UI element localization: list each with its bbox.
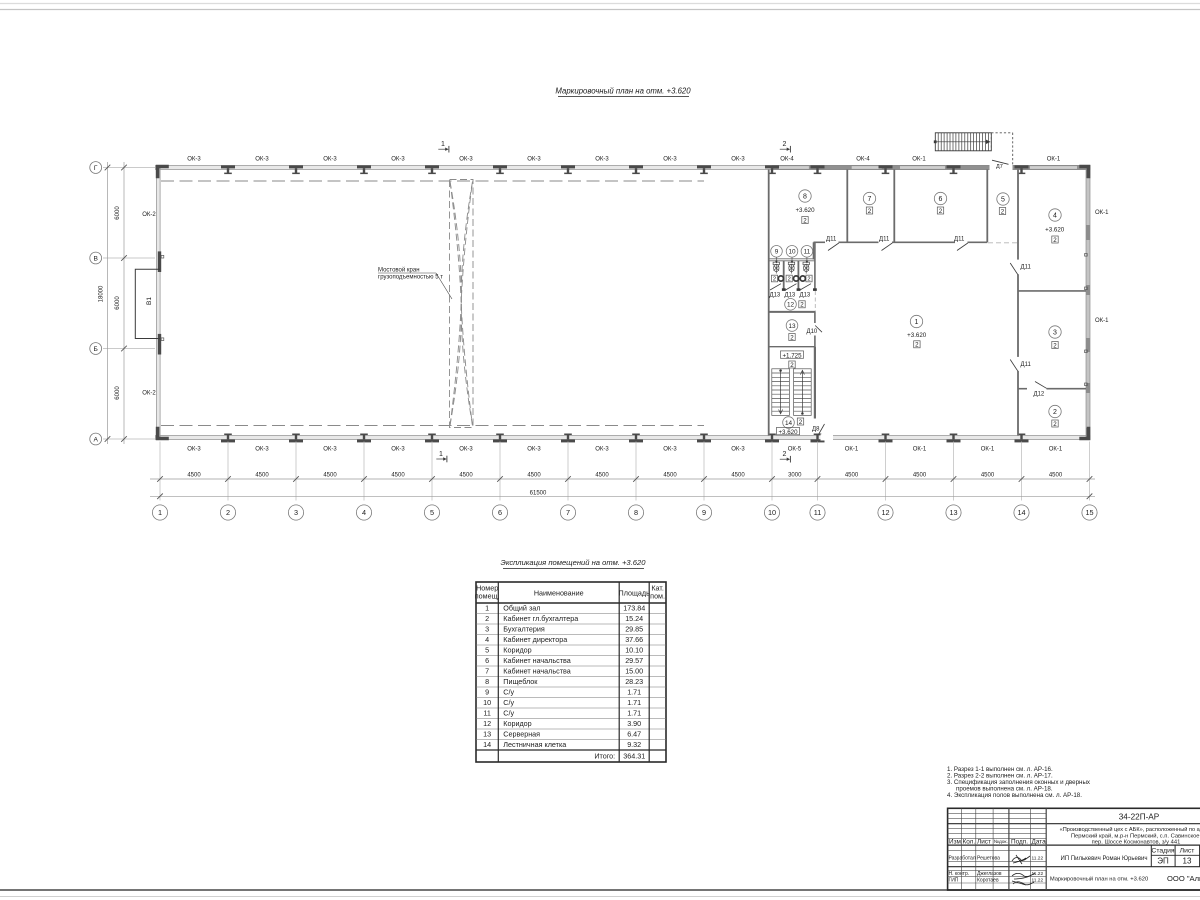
svg-text:С/у: С/у (503, 698, 514, 707)
svg-text:Лист: Лист (1180, 848, 1195, 855)
svg-text:ОК-1: ОК-1 (1049, 447, 1063, 453)
svg-text:Бухгалтерия: Бухгалтерия (503, 625, 545, 634)
svg-text:Кабинет начальства: Кабинет начальства (503, 656, 570, 665)
svg-text:28.23: 28.23 (625, 677, 643, 686)
svg-text:14: 14 (1017, 508, 1025, 517)
svg-text:4500: 4500 (731, 473, 745, 479)
svg-text:ОК-3: ОК-3 (255, 157, 269, 163)
svg-text:3000: 3000 (788, 473, 802, 479)
svg-text:3.90: 3.90 (627, 719, 641, 728)
svg-text:5: 5 (430, 508, 434, 517)
svg-text:2: 2 (803, 217, 807, 224)
svg-text:4: 4 (485, 635, 489, 644)
svg-text:Коротаев: Коротаев (977, 877, 999, 883)
svg-text:2: 2 (226, 508, 230, 517)
svg-text:ОК-3: ОК-3 (459, 447, 473, 453)
svg-text:1.71: 1.71 (627, 688, 641, 697)
svg-text:ОК-3: ОК-3 (731, 157, 745, 163)
svg-text:Д13: Д13 (770, 293, 781, 299)
svg-text:6.47: 6.47 (627, 730, 641, 739)
svg-text:пом.: пом. (650, 592, 665, 601)
svg-text:9: 9 (775, 249, 779, 256)
svg-text:6: 6 (485, 656, 489, 665)
svg-text:ОК-2: ОК-2 (142, 391, 156, 397)
svg-text:2: 2 (939, 208, 943, 215)
svg-text:Итого:: Итого: (594, 752, 615, 761)
svg-text:15.00: 15.00 (625, 667, 643, 676)
svg-text:Д13: Д13 (800, 293, 811, 299)
svg-text:4500: 4500 (323, 473, 337, 479)
svg-text:10.10: 10.10 (625, 646, 643, 655)
svg-text:2: 2 (1053, 421, 1057, 428)
svg-text:4: 4 (1053, 213, 1057, 220)
svg-text:13: 13 (949, 508, 957, 517)
svg-text:ОК-1: ОК-1 (845, 447, 859, 453)
svg-text:13: 13 (483, 730, 491, 739)
svg-text:14: 14 (785, 420, 793, 427)
svg-text:Наименование: Наименование (534, 589, 584, 598)
svg-text:+3.620: +3.620 (907, 332, 927, 339)
svg-text:ОК-3: ОК-3 (187, 447, 201, 453)
svg-text:4500: 4500 (527, 473, 541, 479)
svg-text:10: 10 (483, 698, 491, 707)
svg-text:8: 8 (485, 677, 489, 686)
svg-text:Д10: Д10 (807, 329, 818, 335)
svg-text:4500: 4500 (255, 473, 269, 479)
svg-text:4500: 4500 (595, 473, 609, 479)
svg-text:Кабинет директора: Кабинет директора (503, 635, 567, 644)
svg-text:Мостовой кран: Мостовой кран (378, 267, 420, 274)
svg-text:4500: 4500 (913, 473, 927, 479)
svg-text:61500: 61500 (530, 490, 547, 496)
svg-text:1: 1 (439, 451, 443, 458)
svg-text:Коридор: Коридор (503, 646, 531, 655)
svg-text:15: 15 (1085, 508, 1093, 517)
svg-text:2: 2 (800, 302, 804, 309)
svg-text:Экспликация помещений на отм.: Экспликация помещений на отм. +3.620 (501, 558, 647, 567)
svg-text:Джеглазов: Джеглазов (977, 871, 1002, 877)
svg-text:6000: 6000 (115, 386, 121, 400)
svg-text:12: 12 (787, 302, 795, 309)
svg-text:6000: 6000 (115, 206, 121, 220)
svg-text:1: 1 (158, 508, 162, 517)
svg-text:ОК-3: ОК-3 (255, 447, 269, 453)
svg-text:Лист: Лист (977, 838, 991, 845)
svg-text:2: 2 (773, 277, 776, 283)
svg-text:Стадия: Стадия (1151, 848, 1174, 855)
svg-text:2: 2 (783, 141, 787, 148)
svg-text:С/у: С/у (503, 688, 514, 697)
svg-text:Коридор: Коридор (503, 719, 531, 728)
svg-text:364.31: 364.31 (623, 752, 645, 761)
svg-text:ОК-5: ОК-5 (788, 447, 802, 453)
svg-text:7: 7 (566, 508, 570, 517)
svg-text:ОК-3: ОК-3 (663, 157, 677, 163)
svg-text:11.22: 11.22 (1032, 856, 1044, 862)
svg-text:ОК-1: ОК-1 (912, 157, 926, 163)
svg-text:Серверная: Серверная (503, 730, 540, 739)
svg-text:Кабинет гл.бухгалтера: Кабинет гл.бухгалтера (503, 614, 578, 623)
svg-text:1.71: 1.71 (627, 698, 641, 707)
svg-text:37.66: 37.66 (625, 635, 643, 644)
svg-text:13: 13 (1183, 857, 1192, 866)
svg-text:ОК-3: ОК-3 (459, 157, 473, 163)
svg-text:6000: 6000 (115, 296, 121, 310)
svg-text:9: 9 (485, 688, 489, 697)
svg-text:2: 2 (915, 342, 919, 349)
svg-text:ОК-3: ОК-3 (323, 157, 337, 163)
svg-text:ОК-3: ОК-3 (595, 157, 609, 163)
svg-text:ОК-1: ОК-1 (913, 447, 927, 453)
svg-text:ОК-3: ОК-3 (527, 157, 541, 163)
svg-text:Д11: Д11 (879, 237, 890, 243)
svg-text:7: 7 (868, 196, 872, 203)
svg-text:18000: 18000 (99, 285, 105, 302)
svg-text:2: 2 (807, 277, 810, 283)
svg-text:3: 3 (1053, 330, 1057, 337)
svg-text:34-22П-АР: 34-22П-АР (1119, 813, 1160, 822)
svg-text:4500: 4500 (187, 473, 201, 479)
svg-text:3: 3 (294, 508, 298, 517)
svg-text:Д13: Д13 (785, 293, 796, 299)
svg-text:4: 4 (362, 508, 366, 517)
svg-text:ОК-4: ОК-4 (856, 157, 870, 163)
svg-text:4500: 4500 (845, 473, 859, 479)
svg-text:ОК-1: ОК-1 (1095, 318, 1109, 324)
svg-text:4500: 4500 (459, 473, 473, 479)
svg-text:Кабинет начальства: Кабинет начальства (503, 667, 570, 676)
svg-text:ГИП: ГИП (949, 877, 959, 883)
svg-text:ОК-3: ОК-3 (323, 447, 337, 453)
svg-text:173.84: 173.84 (623, 604, 645, 613)
svg-text:2: 2 (790, 334, 794, 341)
svg-text:ОК-3: ОК-3 (731, 447, 745, 453)
svg-text:Пермский край, м.р-н Пермский,: Пермский край, м.р-н Пермский, с.п. Сави… (1071, 833, 1200, 840)
svg-text:11: 11 (804, 249, 811, 256)
svg-text:8: 8 (634, 508, 638, 517)
svg-text:ОК-3: ОК-3 (391, 157, 405, 163)
svg-text:2: 2 (790, 362, 794, 369)
svg-text:Н. контр.: Н. контр. (949, 871, 970, 877)
svg-text:ОК-1: ОК-1 (981, 447, 995, 453)
svg-text:1: 1 (915, 319, 919, 326)
svg-text:В: В (93, 255, 98, 262)
svg-text:Д7: Д7 (996, 164, 1003, 170)
svg-text:4500: 4500 (391, 473, 405, 479)
svg-text:Подп.: Подп. (1011, 838, 1028, 845)
svg-text:10: 10 (768, 508, 776, 517)
svg-text:Д11: Д11 (1021, 265, 1032, 271)
svg-text:10: 10 (788, 249, 796, 256)
svg-text:4500: 4500 (663, 473, 677, 479)
svg-text:2: 2 (868, 208, 872, 215)
svg-text:ООО "Альфа»: ООО "Альфа» (1167, 874, 1200, 883)
svg-text:2: 2 (485, 614, 489, 623)
svg-text:+3.620: +3.620 (778, 429, 798, 436)
svg-text:С/у: С/у (503, 709, 514, 718)
svg-text:Г: Г (94, 165, 98, 172)
svg-text:1: 1 (485, 604, 489, 613)
svg-text:9: 9 (702, 508, 706, 517)
svg-text:12: 12 (483, 719, 491, 728)
svg-text:ОК-3: ОК-3 (391, 447, 405, 453)
svg-text:5: 5 (1001, 197, 1005, 204)
svg-text:№док.: №док. (994, 839, 1008, 845)
svg-text:2: 2 (783, 451, 787, 458)
svg-text:29.85: 29.85 (625, 625, 643, 634)
svg-text:Лестничная клетка: Лестничная клетка (503, 740, 566, 749)
svg-text:Маркировочный план на отм. +3: Маркировочный план на отм. +3.620 (555, 87, 691, 96)
svg-text:3: 3 (485, 625, 489, 634)
svg-text:грузоподъемностью 5 т: грузоподъемностью 5 т (378, 275, 443, 281)
svg-text:Д8: Д8 (812, 427, 820, 433)
svg-text:помещ.: помещ. (475, 592, 500, 601)
svg-text:В1: В1 (146, 297, 153, 305)
svg-text:Разработал: Разработал (949, 856, 976, 862)
svg-text:ЭП: ЭП (1157, 857, 1169, 866)
svg-text:29.57: 29.57 (625, 656, 643, 665)
svg-text:4500: 4500 (981, 473, 995, 479)
svg-text:12: 12 (881, 508, 889, 517)
svg-text:Кол.: Кол. (963, 838, 976, 845)
svg-text:Пищеблок: Пищеблок (503, 677, 538, 686)
svg-text:1.71: 1.71 (627, 709, 641, 718)
svg-text:Д12: Д12 (1034, 392, 1045, 398)
svg-text:11: 11 (814, 508, 822, 517)
svg-text:Маркировочный план на отм. +3.: Маркировочный план на отм. +3.620 (1050, 876, 1148, 883)
svg-text:2: 2 (788, 277, 791, 283)
svg-text:2: 2 (1001, 208, 1005, 215)
svg-text:11: 11 (483, 709, 490, 718)
svg-text:+1.725: +1.725 (782, 353, 802, 360)
svg-text:4500: 4500 (1049, 473, 1063, 479)
svg-text:ОК-1: ОК-1 (1047, 157, 1061, 163)
svg-text:Д11: Д11 (954, 237, 965, 243)
svg-text:ОК-3: ОК-3 (527, 447, 541, 453)
svg-text:2: 2 (1053, 342, 1057, 349)
svg-text:1: 1 (441, 141, 445, 148)
svg-text:А: А (93, 436, 98, 443)
svg-text:ИП Пилькевич Роман Юрьевич: ИП Пилькевич Роман Юрьевич (1061, 856, 1148, 862)
svg-text:Общий зал: Общий зал (503, 604, 540, 613)
svg-text:Д11: Д11 (1021, 362, 1032, 368)
svg-text:2: 2 (799, 419, 803, 426)
svg-text:ОК-4: ОК-4 (780, 157, 794, 163)
svg-text:Площадь: Площадь (619, 589, 651, 598)
svg-text:5: 5 (485, 646, 489, 655)
svg-text:ОК-3: ОК-3 (187, 157, 201, 163)
svg-text:13: 13 (788, 323, 796, 330)
svg-text:14: 14 (483, 740, 491, 749)
svg-text:4. Экспликация полов выполнена: 4. Экспликация полов выполнена см. л. АР… (947, 792, 1082, 799)
svg-text:2: 2 (1053, 237, 1057, 244)
svg-text:Дата: Дата (1032, 838, 1047, 845)
svg-text:ОК-3: ОК-3 (595, 447, 609, 453)
svg-text:+3.620: +3.620 (1045, 227, 1065, 234)
svg-text:Изм.: Изм. (949, 838, 963, 845)
svg-text:7: 7 (485, 667, 489, 676)
svg-text:пер. Шоссе Космонавтов, з/у 44: пер. Шоссе Космонавтов, з/у 441 (1092, 840, 1181, 846)
svg-text:ОК-1: ОК-1 (1095, 210, 1109, 216)
svg-text:15.24: 15.24 (625, 614, 643, 623)
svg-text:9.32: 9.32 (627, 740, 641, 749)
svg-text:«Производственный цех с АБК»,: «Производственный цех с АБК», расположен… (1060, 826, 1200, 833)
svg-text:Д11: Д11 (826, 237, 837, 243)
svg-text:ОК-3: ОК-3 (663, 447, 677, 453)
svg-text:2: 2 (1053, 409, 1057, 416)
svg-text:6: 6 (498, 508, 502, 517)
svg-text:8: 8 (803, 194, 807, 201)
svg-text:+3.620: +3.620 (795, 207, 815, 214)
svg-text:ОК-2: ОК-2 (142, 212, 156, 218)
svg-text:Б: Б (94, 346, 98, 353)
svg-text:Решетова: Решетова (977, 856, 1000, 862)
svg-text:6: 6 (939, 196, 943, 203)
